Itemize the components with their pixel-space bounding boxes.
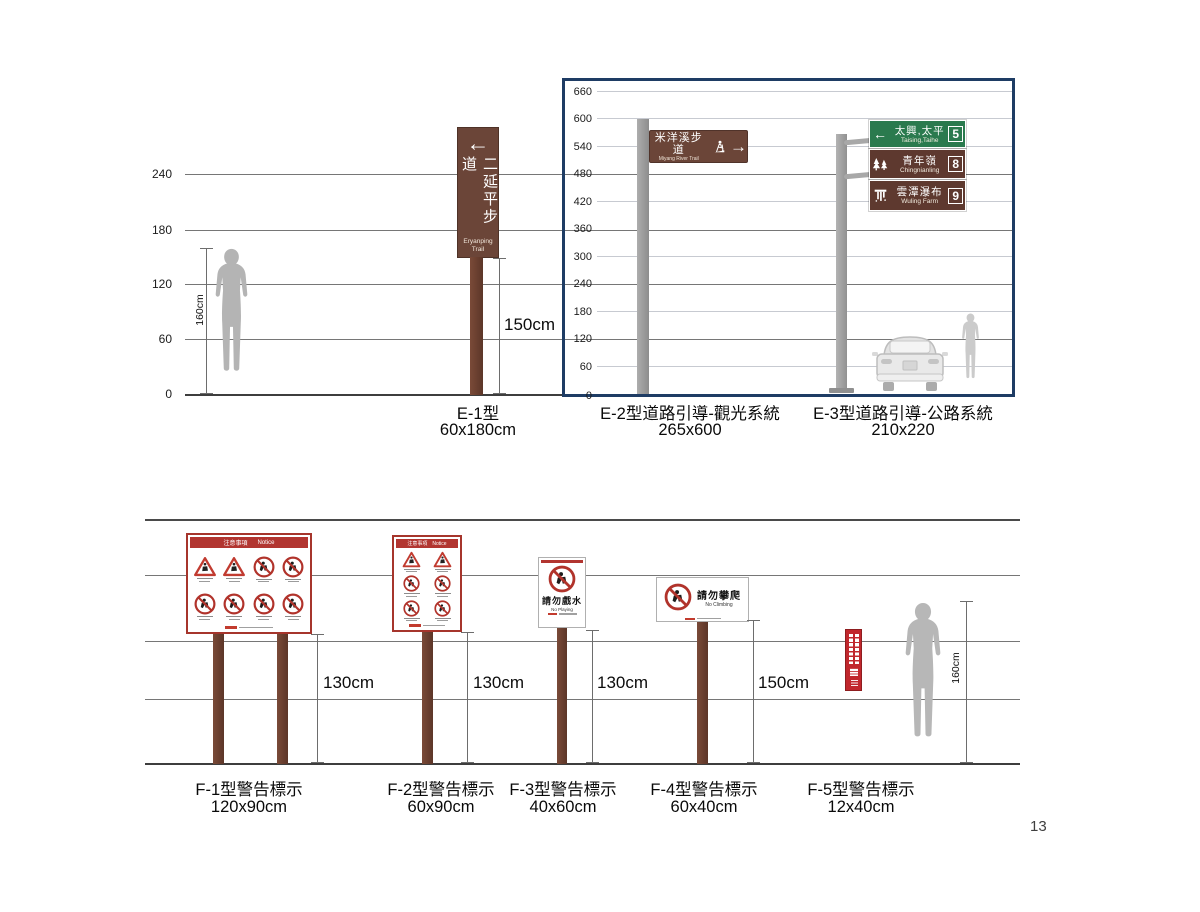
- f2-height-dimension-line: [467, 632, 468, 763]
- frame-scale-label: 360: [560, 223, 592, 235]
- person-height-dimension-line: [206, 248, 207, 394]
- f5-caption: F-5型警告標示: [781, 776, 941, 800]
- f3-warning-sign: 請勿戲水 No Playing: [538, 557, 586, 628]
- route-number-badge: 5: [948, 126, 963, 142]
- e2-name-zh: 米洋溪步道: [650, 132, 708, 156]
- f4-height-dimension-line: [753, 620, 754, 763]
- e3-sign1-zh: 太興,太平: [891, 125, 948, 137]
- frame-scale-label: 180: [560, 306, 592, 318]
- e1-sign-post: [470, 257, 483, 395]
- frame-scale-label: 540: [560, 141, 592, 153]
- route-number-badge: 9: [948, 188, 963, 204]
- f4-content: 請勿攀爬 No Climbing: [657, 578, 748, 616]
- scale-label: 0: [132, 387, 172, 401]
- f4-size: 60x40cm: [624, 798, 784, 817]
- f3-height-dimension-line: [592, 630, 593, 763]
- e3-direction-sign-green: ← 太興,太平 Taising,Taihe 5: [869, 120, 966, 148]
- f3-text-zh: 請勿戲水: [542, 594, 582, 607]
- prohibition-icon: [434, 600, 451, 622]
- prohibition-icon: [403, 600, 420, 622]
- f1-post: [213, 634, 224, 764]
- f4-post: [697, 622, 708, 764]
- e3-direction-sign-brown-2: 雲潭瀑布 Wuling Farm 9: [869, 180, 966, 211]
- f5-warning-sign: [845, 629, 862, 691]
- arrow-right-icon: →: [730, 137, 747, 157]
- prohibition-icon: [282, 593, 304, 620]
- f4-text: 請勿攀爬 No Climbing: [697, 587, 741, 608]
- f2-pictogram-grid: [396, 548, 458, 623]
- prohibition-icon: [434, 575, 451, 597]
- f3-fineprint: [548, 612, 577, 617]
- frame-scale-label: 480: [560, 168, 592, 180]
- frame-scale-label: 300: [560, 251, 592, 263]
- e1-en-line2: Trail: [463, 246, 492, 254]
- f5-vertical-text-column: [849, 634, 853, 664]
- f2-fineprint: [396, 623, 458, 628]
- prohibition-icon: [223, 593, 245, 620]
- person-silhouette: [898, 602, 948, 763]
- f1-header-zh: 注意事項: [223, 538, 247, 547]
- frame-scale-label: 600: [560, 113, 592, 125]
- f1-height-dimension-line: [317, 634, 318, 763]
- e3-sign3-text: 雲潭瀑布 Wuling Farm: [891, 186, 948, 205]
- f5-vertical-text-column: [855, 634, 859, 664]
- prohibition-icon: [253, 593, 275, 620]
- e1-en-line1: Eryanping: [463, 238, 492, 246]
- hiker-icon: [713, 140, 725, 153]
- trees-icon: [869, 157, 891, 171]
- f4-caption: F-4型警告標示: [624, 776, 784, 800]
- f1-pictogram-grid: [190, 548, 308, 625]
- f2-height-label: 130cm: [473, 673, 524, 693]
- person-height-dimension-line: [966, 601, 967, 763]
- prohibition-icon: [194, 593, 216, 620]
- warning-triangle-icon: [433, 551, 452, 573]
- prohibition-icon: [282, 556, 304, 583]
- f1-header: 注意事項 Notice: [190, 537, 308, 548]
- e1-height-label: 150cm: [504, 315, 555, 335]
- signage-spec-page: 240 180 120 60 0 160cm ← 二延平步道 Eryanping…: [0, 0, 1200, 912]
- f1-header-en: Notice: [258, 540, 275, 546]
- e1-trail-sign: ← 二延平步道 Eryanping Trail: [457, 127, 499, 258]
- waterfall-icon: [869, 188, 891, 203]
- route-number-badge: 8: [948, 156, 963, 172]
- car-rear-silhouette: [864, 330, 956, 392]
- prohibition-icon: [253, 556, 275, 583]
- scale-label: 120: [132, 277, 172, 291]
- e3-sign2-zh: 青年嶺: [891, 155, 948, 167]
- f2-header-zh: 注意事項: [407, 540, 427, 547]
- warning-triangle-icon: [402, 551, 421, 573]
- f3-height-label: 130cm: [597, 673, 648, 693]
- arrow-left-icon: ←: [467, 131, 490, 155]
- e3-direction-sign-brown-1: 青年嶺 Chingnianling 8: [869, 149, 966, 179]
- f1-size: 120x90cm: [169, 798, 329, 817]
- frame-scale-label: 120: [560, 333, 592, 345]
- f2-header-en: Notice: [432, 541, 446, 547]
- f3-header-bar: [541, 560, 583, 563]
- prohibition-icon: [548, 565, 576, 593]
- warning-triangle-icon: [222, 556, 246, 582]
- frame-scale-label: 60: [560, 361, 592, 373]
- f5-size: 12x40cm: [781, 798, 941, 817]
- gridline: [145, 519, 1020, 521]
- f2-header: 注意事項 Notice: [396, 539, 458, 548]
- e3-size: 210x220: [783, 421, 1023, 440]
- f2-post: [422, 632, 433, 764]
- f3-size: 40x60cm: [483, 798, 643, 817]
- person-silhouette-small: [956, 313, 985, 391]
- frame-scale-label: 660: [560, 86, 592, 98]
- f5-fineprint: [851, 680, 858, 687]
- prohibition-icon: [664, 583, 692, 611]
- warning-triangle-icon: [193, 556, 217, 582]
- f4-text-zh: 請勿攀爬: [697, 587, 741, 602]
- e3-sign1-text: 太興,太平 Taising,Taihe: [891, 125, 948, 144]
- e3-sign2-en: Chingnianling: [891, 167, 948, 174]
- scale-label: 60: [132, 332, 172, 346]
- f1-post: [277, 634, 288, 764]
- f4-warning-sign: 請勿攀爬 No Climbing: [656, 577, 749, 622]
- prohibition-icon: [403, 575, 420, 597]
- f1-warning-sign: 注意事項 Notice: [186, 533, 312, 634]
- person-height-label: 160cm: [950, 646, 962, 690]
- e3-sign3-zh: 雲潭瀑布: [891, 186, 948, 198]
- f4-height-label: 150cm: [758, 673, 809, 693]
- e2-sign-text: 米洋溪步道 Miyang River Trail: [650, 132, 708, 162]
- e3-sign3-en: Wuling Farm: [891, 198, 948, 205]
- f3-post: [557, 628, 567, 764]
- e1-size: 60x180cm: [398, 421, 558, 440]
- e1-sign-name-en: Eryanping Trail: [463, 238, 492, 253]
- e1-sign-name-zh: 二延平步道: [458, 156, 500, 238]
- f1-fineprint: [190, 625, 308, 630]
- f1-height-label: 130cm: [323, 673, 374, 693]
- f5-pictogram-box: [850, 668, 858, 676]
- e2-name-en: Miyang River Trail: [650, 156, 708, 162]
- e3-pole-base: [829, 388, 854, 393]
- f1-caption: F-1型警告標示: [169, 776, 329, 800]
- person-height-label: 160cm: [194, 288, 206, 332]
- e2-size: 265x600: [570, 421, 810, 440]
- e3-sign1-en: Taising,Taihe: [891, 137, 948, 144]
- e1-height-dimension-line: [499, 258, 500, 394]
- f4-fineprint: [657, 616, 748, 621]
- scale-label: 240: [132, 167, 172, 181]
- person-silhouette: [213, 248, 250, 395]
- frame-scale-label: 420: [560, 196, 592, 208]
- e2-trail-sign: 米洋溪步道 Miyang River Trail →: [649, 130, 748, 163]
- arrow-left-icon: ←: [869, 126, 891, 142]
- scale-label: 180: [132, 223, 172, 237]
- e3-sign-pole: [836, 134, 847, 390]
- page-number: 13: [1030, 818, 1047, 835]
- e3-sign2-text: 青年嶺 Chingnianling: [891, 155, 948, 174]
- frame-scale-label: 240: [560, 278, 592, 290]
- f3-caption: F-3型警告標示: [483, 776, 643, 800]
- f2-warning-sign: 注意事項 Notice: [392, 535, 462, 632]
- f4-text-en: No Climbing: [697, 602, 741, 608]
- e2-sign-pole: [637, 119, 649, 394]
